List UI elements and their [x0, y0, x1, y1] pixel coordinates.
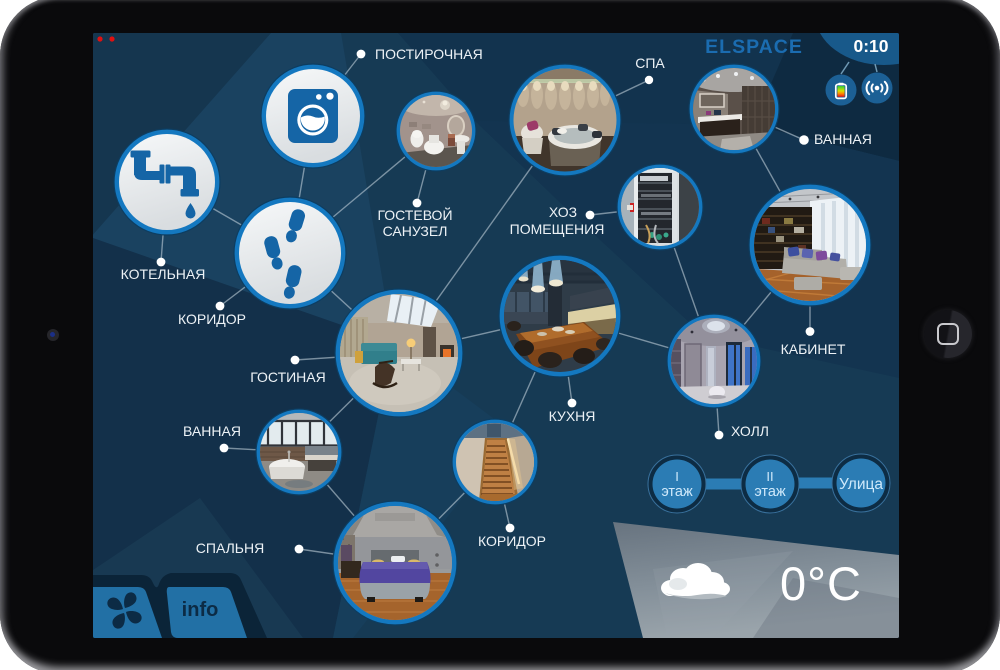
svg-text:СПА: СПА	[635, 55, 665, 71]
svg-text:ГОСТЕВОЙ: ГОСТЕВОЙ	[377, 206, 452, 223]
svg-text:этаж: этаж	[754, 484, 786, 500]
svg-text:этаж: этаж	[661, 484, 693, 500]
svg-text:ELSPACE: ELSPACE	[705, 36, 803, 58]
svg-text:ВАННАЯ: ВАННАЯ	[814, 131, 872, 147]
svg-text:0:10: 0:10	[853, 36, 888, 56]
svg-text:КАБИНЕТ: КАБИНЕТ	[781, 341, 846, 357]
svg-text:КОТЕЛЬНАЯ: КОТЕЛЬНАЯ	[121, 266, 206, 282]
svg-text:ПОМЕЩЕНИЯ: ПОМЕЩЕНИЯ	[510, 221, 605, 237]
svg-text:КОРИДОР: КОРИДОР	[478, 533, 546, 549]
svg-text:ПОСТИРОЧНАЯ: ПОСТИРОЧНАЯ	[375, 46, 483, 62]
svg-text:ВАННАЯ: ВАННАЯ	[183, 423, 241, 439]
svg-text:КОРИДОР: КОРИДОР	[178, 311, 246, 327]
svg-text:ХОЛЛ: ХОЛЛ	[731, 423, 769, 439]
svg-text:Улица: Улица	[839, 476, 883, 493]
svg-text:СПАЛЬНЯ: СПАЛЬНЯ	[196, 540, 264, 556]
svg-text:0°C: 0°C	[780, 557, 862, 610]
svg-text:КУХНЯ: КУХНЯ	[549, 408, 596, 424]
svg-text:I: I	[675, 469, 679, 484]
svg-text:САНУЗЕЛ: САНУЗЕЛ	[383, 223, 448, 239]
svg-text:ГОСТИНАЯ: ГОСТИНАЯ	[250, 369, 326, 385]
svg-text:II: II	[766, 469, 773, 484]
svg-text:ХОЗ: ХОЗ	[549, 204, 577, 220]
svg-text:info: info	[182, 599, 219, 621]
